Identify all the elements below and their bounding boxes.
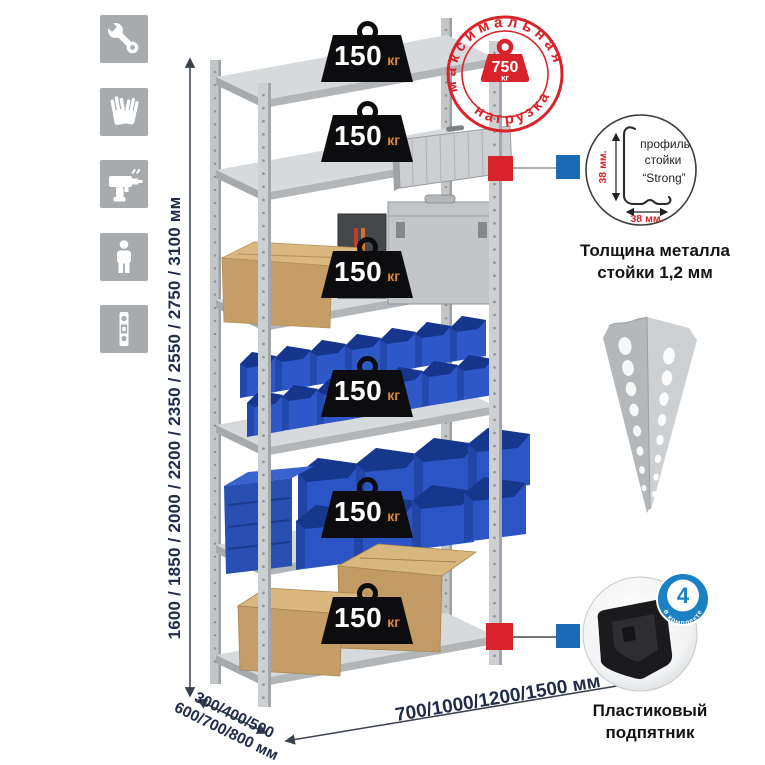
profile-label-1: профиль bbox=[640, 137, 690, 151]
weight-value: 150 bbox=[334, 377, 382, 405]
profile-label-2: стойки bbox=[645, 153, 682, 167]
quantity-badge: 4 в комплекте bbox=[657, 573, 709, 627]
shelf-weight-1: 150кг bbox=[321, 21, 413, 82]
profile-caption-line2: стойки 1,2 мм bbox=[570, 262, 740, 284]
profile-width-dim: 38 мм. bbox=[630, 213, 663, 225]
foot-caption: Пластиковый подпятник bbox=[575, 700, 725, 744]
shelving-infographic: 1600 / 1850 / 2000 / 2200 / 2350 / 2550 … bbox=[0, 0, 765, 765]
weight-unit: кг bbox=[387, 615, 400, 629]
shelf-weight-4: 150кг bbox=[321, 356, 413, 417]
profile-height-dim: 38 мм. bbox=[597, 150, 609, 183]
weight-unit: кг bbox=[387, 388, 400, 402]
stamp-unit: кг bbox=[501, 73, 509, 83]
weight-unit: кг bbox=[387, 53, 400, 67]
blue-marker-square-top bbox=[556, 155, 580, 179]
plastic-foot-circle: 4 в комплекте bbox=[566, 556, 756, 706]
weight-unit: кг bbox=[387, 269, 400, 283]
shelf-weight-6: 150кг bbox=[321, 583, 413, 644]
profile-label-3: “Strong” bbox=[642, 171, 685, 185]
red-marker-square-bottom bbox=[486, 623, 513, 650]
corner-post-image bbox=[585, 298, 725, 533]
profile-callout-connector bbox=[488, 155, 580, 181]
weight-value: 150 bbox=[334, 42, 382, 70]
shelf-weight-5: 150кг bbox=[321, 477, 413, 538]
weight-unit: кг bbox=[387, 509, 400, 523]
weight-value: 150 bbox=[334, 258, 382, 286]
badge-number: 4 bbox=[677, 583, 690, 608]
foot-caption-line2: подпятник bbox=[575, 722, 725, 744]
stamp-weight-icon: 750 кг bbox=[481, 41, 529, 83]
foot-caption-line1: Пластиковый bbox=[575, 700, 725, 722]
profile-detail-circle: 38 мм. 38 мм. профиль стойки “Strong” bbox=[578, 106, 708, 241]
profile-caption: Толщина металла стойки 1,2 мм bbox=[570, 240, 740, 284]
profile-caption-line1: Толщина металла bbox=[570, 240, 740, 262]
shelf-weight-2: 150кг bbox=[321, 101, 413, 162]
weight-value: 150 bbox=[334, 122, 382, 150]
weight-unit: кг bbox=[387, 133, 400, 147]
weight-value: 150 bbox=[334, 604, 382, 632]
red-marker-square-top bbox=[488, 156, 513, 181]
weight-value: 150 bbox=[334, 498, 382, 526]
height-dimension-label: 1600 / 1850 / 2000 / 2200 / 2350 / 2550 … bbox=[165, 148, 185, 688]
shelf-weight-3: 150кг bbox=[321, 237, 413, 298]
max-load-stamp: максимальная нагрузка 750 кг bbox=[438, 8, 573, 143]
